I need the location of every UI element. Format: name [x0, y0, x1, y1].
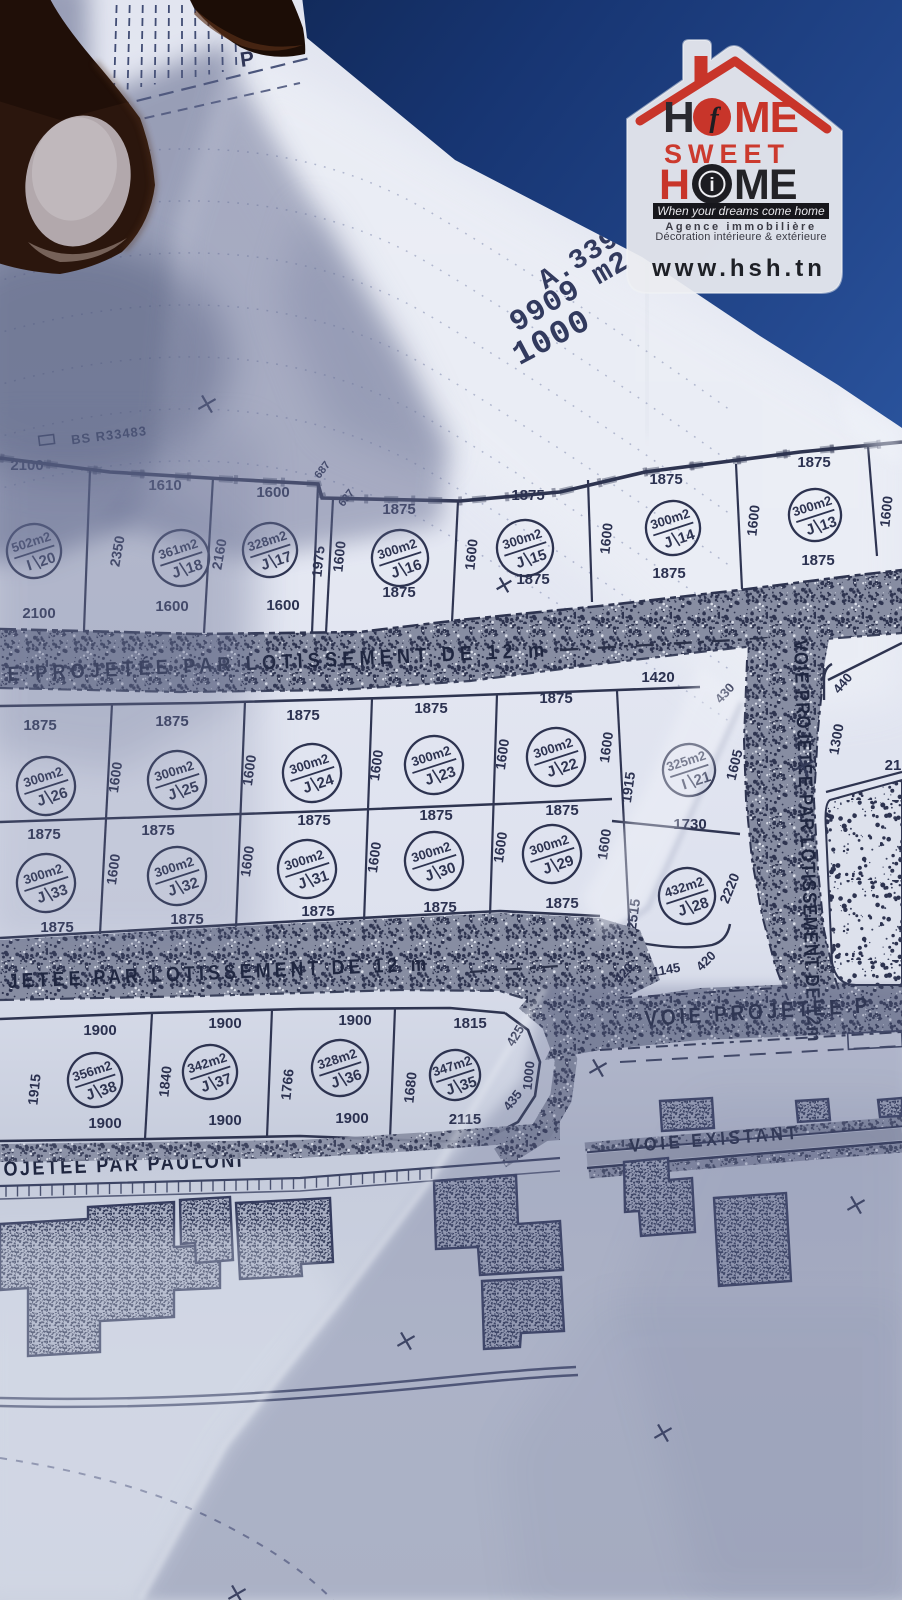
svg-text:1600: 1600 — [876, 495, 895, 528]
svg-text:1600: 1600 — [596, 522, 615, 555]
svg-text:1900: 1900 — [88, 1115, 121, 1132]
svg-text:www.hsh.tn: www.hsh.tn — [651, 255, 826, 282]
svg-text:1875: 1875 — [797, 454, 830, 471]
svg-text:1875: 1875 — [801, 552, 834, 569]
svg-text:ME: ME — [734, 93, 798, 142]
svg-text:1900: 1900 — [208, 1112, 241, 1129]
svg-text:1900: 1900 — [208, 1015, 241, 1032]
svg-text:1900: 1900 — [335, 1110, 368, 1127]
svg-text:1875: 1875 — [419, 807, 452, 824]
svg-text:1600: 1600 — [461, 538, 480, 571]
svg-text:1975: 1975 — [308, 545, 327, 578]
svg-text:1875: 1875 — [649, 471, 682, 488]
svg-text:21: 21 — [885, 757, 902, 774]
svg-text:i: i — [709, 175, 714, 196]
svg-text:ME: ME — [734, 161, 797, 209]
svg-text:1900: 1900 — [83, 1022, 116, 1039]
svg-text:1875: 1875 — [511, 487, 544, 504]
svg-text:1875: 1875 — [414, 700, 447, 717]
svg-text:1875: 1875 — [539, 690, 572, 707]
svg-text:1875: 1875 — [545, 802, 578, 819]
svg-text:1875: 1875 — [545, 895, 578, 912]
svg-text:1600: 1600 — [743, 504, 762, 537]
svg-text:1875: 1875 — [652, 565, 685, 582]
svg-text:1815: 1815 — [453, 1015, 486, 1032]
svg-text:1766: 1766 — [277, 1068, 296, 1101]
svg-text:1875: 1875 — [382, 584, 415, 601]
svg-text:Décoration intérieure & extéri: Décoration intérieure & extérieure — [655, 231, 826, 243]
svg-text:1875: 1875 — [516, 571, 549, 588]
svg-text:1875: 1875 — [286, 707, 319, 724]
svg-text:1875: 1875 — [297, 812, 330, 829]
svg-text:1875: 1875 — [301, 903, 334, 920]
svg-text:1900: 1900 — [338, 1012, 371, 1029]
svg-text:1840: 1840 — [155, 1065, 174, 1098]
svg-text:1680: 1680 — [400, 1071, 419, 1104]
svg-text:1420: 1420 — [641, 669, 674, 686]
svg-text:H: H — [663, 93, 694, 142]
svg-text:1600: 1600 — [329, 540, 348, 573]
svg-text:1915: 1915 — [24, 1073, 43, 1106]
svg-text:H: H — [659, 161, 689, 209]
svg-text:1600: 1600 — [266, 597, 299, 614]
svg-text:When your dreams come home: When your dreams come home — [657, 204, 825, 218]
svg-text:1875: 1875 — [423, 899, 456, 916]
